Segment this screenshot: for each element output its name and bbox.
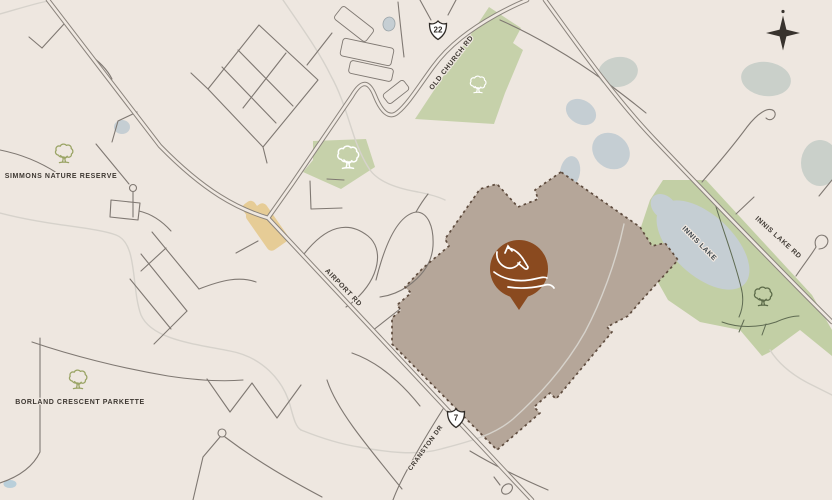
label-simmons-nature-reserve: SIMMONS NATURE RESERVE [5, 173, 118, 180]
shield-number: 7 [454, 414, 459, 423]
pin-circle [490, 240, 548, 298]
cul-de-sac [218, 429, 226, 437]
map-canvas: 227SIMMONS NATURE RESERVEBORLAND CRESCEN… [0, 0, 832, 500]
shield-number: 22 [434, 26, 443, 35]
site-map: 227SIMMONS NATURE RESERVEBORLAND CRESCEN… [0, 0, 832, 500]
cul-de-sac [130, 185, 137, 192]
compass-north-dot [781, 10, 784, 13]
label-borland-crescent-parkette: BORLAND CRESCENT PARKETTE [15, 399, 145, 406]
